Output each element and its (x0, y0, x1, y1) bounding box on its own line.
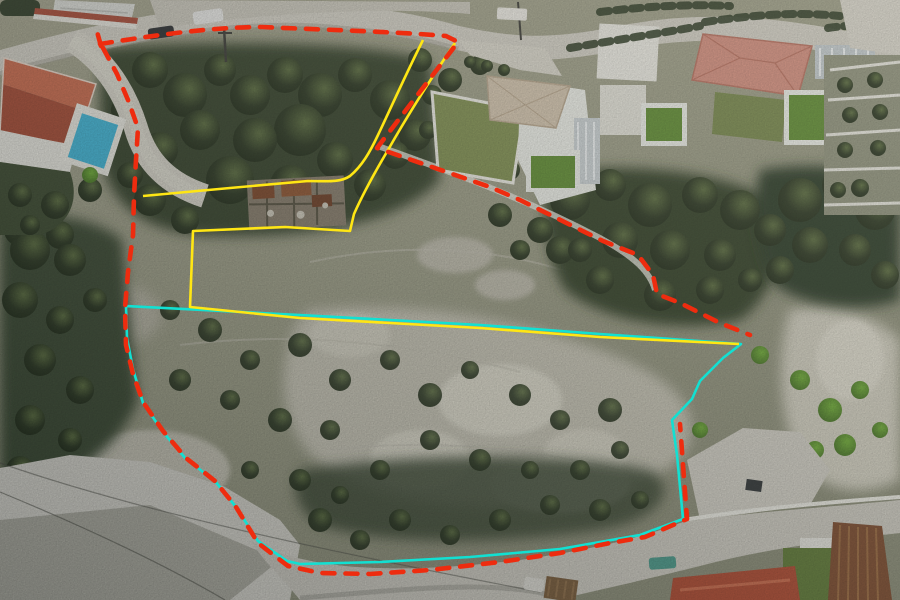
aerial-photo (0, 0, 900, 600)
light-cast (0, 0, 900, 600)
aerial-photo-stage (0, 0, 900, 600)
